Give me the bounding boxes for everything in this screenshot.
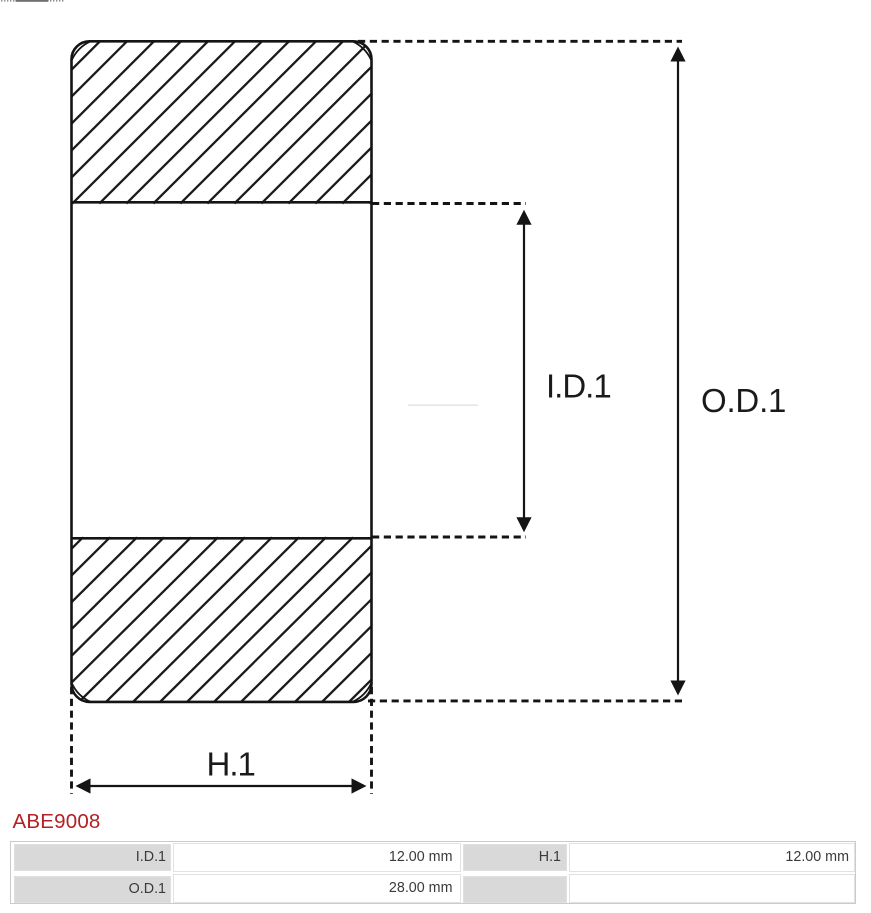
svg-text:H.1: H.1 xyxy=(207,745,255,782)
svg-text:O.D.1: O.D.1 xyxy=(701,382,786,419)
svg-text:I.D.1: I.D.1 xyxy=(546,368,611,405)
